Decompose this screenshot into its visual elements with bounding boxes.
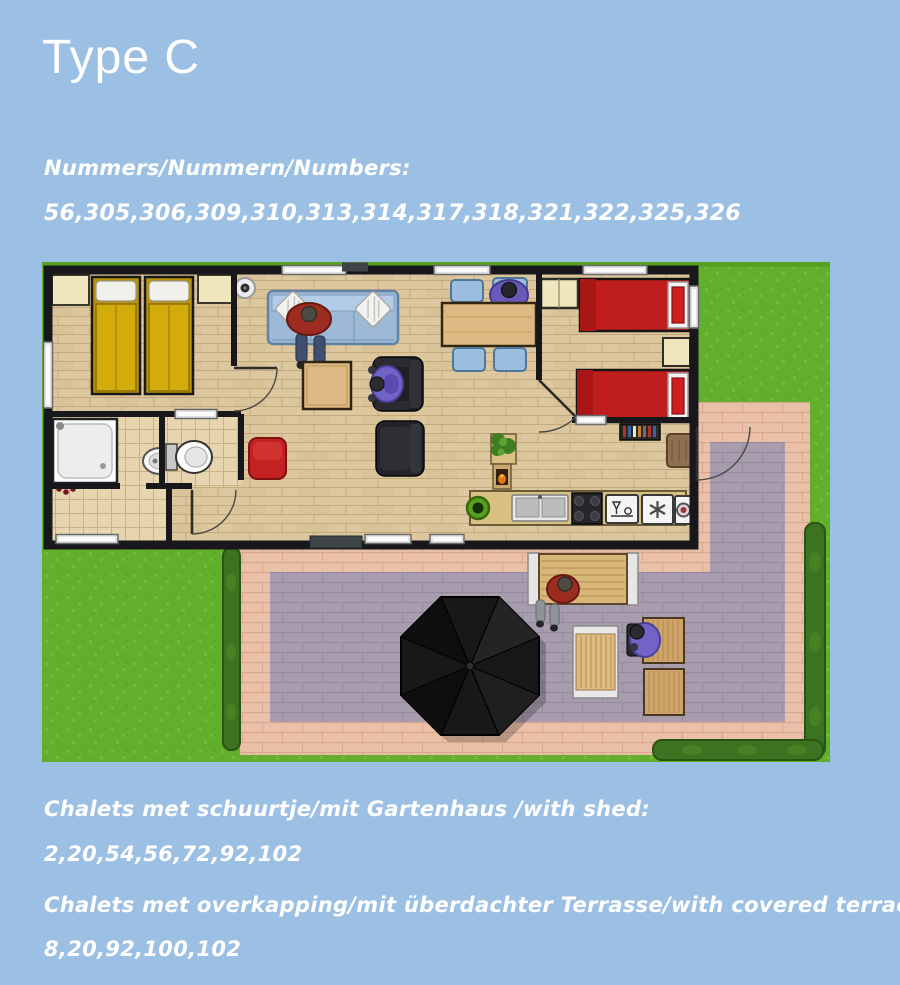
freezer — [642, 495, 673, 524]
kitchen-sink — [512, 495, 568, 521]
bath-accessory — [63, 489, 69, 495]
window — [365, 535, 411, 544]
floor-plan-image — [42, 262, 830, 762]
toilet — [166, 441, 212, 473]
dishwasher — [606, 495, 638, 523]
dining-chair — [494, 348, 526, 371]
coffee-table — [303, 362, 351, 409]
dining-table — [442, 303, 536, 346]
dining-chair — [453, 348, 485, 371]
shed-label: Chalets met schuurtje/mit Gartenhaus /wi… — [44, 797, 650, 821]
covered-terrace-values: 8,20,92,100,102 — [44, 937, 241, 961]
window — [282, 266, 346, 275]
armchair-empty — [376, 421, 424, 476]
washing-machine — [675, 496, 692, 524]
bed-red-1 — [580, 279, 690, 331]
bed-yellow-1 — [92, 277, 140, 394]
sun-lounger — [573, 626, 618, 698]
heater-stand — [493, 464, 511, 489]
hedge-left — [223, 548, 240, 750]
numbers-label: Nummers/Nummern/Numbers: — [44, 156, 411, 180]
shed-values: 2,20,54,56,72,92,102 — [44, 842, 302, 866]
plant-pot — [467, 497, 489, 519]
bed-yellow-2 — [145, 277, 193, 394]
parasol-pole — [466, 662, 474, 670]
bed-red-2 — [577, 370, 690, 422]
covered-terrace-label: Chalets met overkapping/mit überdachter … — [44, 893, 900, 917]
bookshelf — [620, 424, 660, 440]
window — [583, 266, 647, 275]
picnic-table — [528, 553, 638, 605]
plant-stand — [491, 433, 516, 464]
red-pouf — [249, 438, 286, 479]
window — [56, 535, 118, 544]
numbers-values: 56,305,306,309,310,313,314,317,318,321,3… — [44, 201, 741, 226]
floor-plan — [42, 262, 830, 762]
window — [434, 266, 490, 275]
terrace-stool — [644, 669, 684, 715]
closet-cream — [541, 279, 578, 308]
window — [576, 416, 606, 425]
house — [44, 263, 751, 549]
stove — [572, 493, 602, 524]
person-at-side-table — [627, 623, 660, 657]
person-in-armchair — [368, 366, 403, 402]
door-step — [310, 536, 362, 548]
window — [175, 410, 217, 419]
hedge-bottom — [653, 740, 823, 760]
nightstand-right — [198, 275, 232, 303]
window — [44, 342, 53, 408]
dining-chair — [451, 280, 483, 302]
page-title: Type C — [42, 30, 200, 85]
nightstand-red-room — [663, 338, 690, 366]
hedge-right — [805, 523, 825, 757]
window — [430, 535, 464, 544]
window — [690, 286, 699, 328]
shower — [53, 419, 117, 483]
nightstand-left — [52, 275, 89, 305]
entrance-mat-top — [342, 263, 368, 272]
speaker — [235, 278, 255, 298]
